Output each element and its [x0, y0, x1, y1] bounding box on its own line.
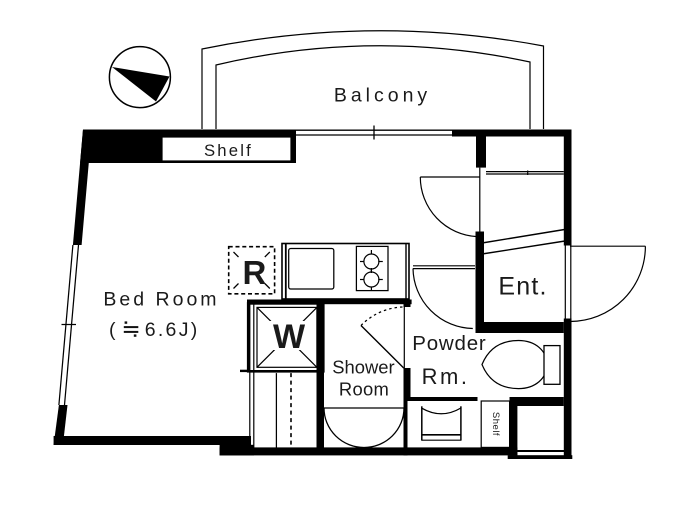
svg-text:Shower: Shower	[332, 356, 394, 377]
svg-text:Powder: Powder	[412, 332, 486, 355]
svg-text:Bed Room: Bed Room	[103, 289, 219, 311]
svg-text:Shelf: Shelf	[204, 141, 253, 160]
svg-text:W: W	[273, 318, 306, 356]
svg-text:R: R	[242, 254, 266, 291]
svg-text:Shelf: Shelf	[490, 412, 501, 436]
svg-text:Balcony: Balcony	[334, 84, 431, 106]
svg-text:Room: Room	[339, 379, 389, 400]
svg-text:6.6J): 6.6J)	[145, 319, 200, 341]
svg-text:(: (	[109, 319, 116, 341]
svg-text:Rm.: Rm.	[422, 364, 470, 389]
svg-text:Ent.: Ent.	[498, 273, 547, 301]
